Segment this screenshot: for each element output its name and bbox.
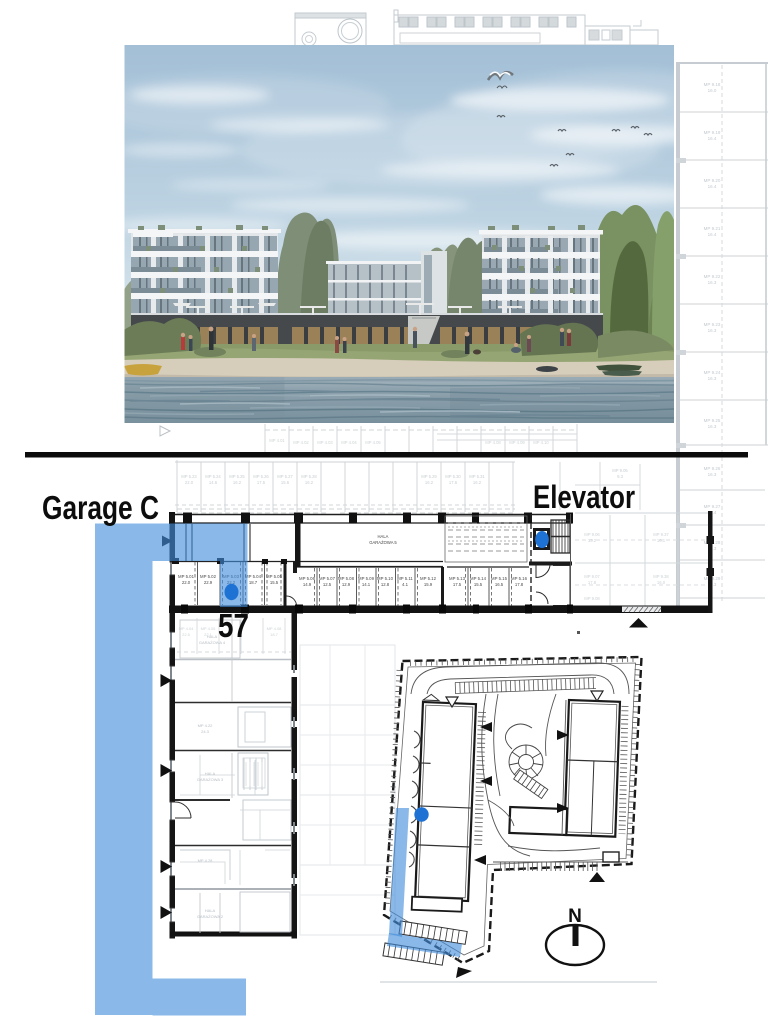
svg-text:12.8: 12.8 bbox=[381, 582, 390, 587]
svg-text:MP 5.04: MP 5.04 bbox=[245, 574, 262, 579]
svg-text:15.5: 15.5 bbox=[474, 582, 483, 587]
svg-text:16.5: 16.5 bbox=[495, 582, 504, 587]
svg-text:14.6: 14.6 bbox=[209, 480, 218, 485]
svg-text:MP 4.05: MP 4.05 bbox=[365, 440, 381, 445]
svg-text:MP 5.23: MP 5.23 bbox=[181, 474, 197, 479]
svg-text:MP 9.06: MP 9.06 bbox=[584, 532, 600, 537]
svg-text:17.5: 17.5 bbox=[257, 480, 266, 485]
svg-text:14.1: 14.1 bbox=[362, 582, 371, 587]
svg-text:17.6: 17.6 bbox=[449, 480, 458, 485]
svg-text:MP 4.10: MP 4.10 bbox=[533, 440, 549, 445]
svg-text:22.0: 22.0 bbox=[182, 580, 191, 585]
svg-text:MP 5.26: MP 5.26 bbox=[253, 474, 269, 479]
svg-text:MP 4.09: MP 4.09 bbox=[509, 440, 525, 445]
svg-text:13.2: 13.2 bbox=[588, 538, 597, 543]
svg-text:MP 4.04: MP 4.04 bbox=[179, 626, 195, 631]
svg-text:22.1: 22.1 bbox=[204, 632, 213, 637]
svg-text:HALA: HALA bbox=[205, 908, 216, 913]
svg-text:16.2: 16.2 bbox=[473, 480, 482, 485]
svg-text:16.3: 16.3 bbox=[708, 424, 717, 429]
svg-text:MP 5.07: MP 5.07 bbox=[319, 576, 336, 581]
svg-text:17.5: 17.5 bbox=[453, 582, 462, 587]
svg-text:MP 4.08: MP 4.08 bbox=[267, 626, 283, 631]
svg-text:MP 9.26: MP 9.26 bbox=[704, 466, 721, 471]
svg-text:16.0: 16.0 bbox=[708, 88, 717, 93]
svg-text:16.4: 16.4 bbox=[708, 184, 717, 189]
svg-text:Garage C: Garage C bbox=[42, 489, 159, 526]
svg-text:4.1: 4.1 bbox=[402, 582, 409, 587]
svg-text:MP 4.08: MP 4.08 bbox=[485, 440, 501, 445]
svg-text:16.3: 16.3 bbox=[708, 376, 717, 381]
svg-text:MP 9.20: MP 9.20 bbox=[704, 178, 721, 183]
svg-text:MP 9.37: MP 9.37 bbox=[653, 532, 669, 537]
svg-text:GARAŻOWA 5: GARAŻOWA 5 bbox=[369, 540, 397, 545]
svg-text:MP 5.05: MP 5.05 bbox=[266, 574, 283, 579]
svg-text:16.3: 16.3 bbox=[708, 472, 717, 477]
svg-text:MP 9.08: MP 9.08 bbox=[584, 596, 600, 601]
svg-text:16.2: 16.2 bbox=[233, 480, 242, 485]
svg-text:16.2: 16.2 bbox=[305, 480, 314, 485]
svg-text:MP 9.25: MP 9.25 bbox=[704, 418, 721, 423]
svg-text:17.8: 17.8 bbox=[515, 582, 524, 587]
svg-text:16.2: 16.2 bbox=[425, 480, 434, 485]
svg-text:16.4: 16.4 bbox=[708, 136, 717, 141]
svg-text:15.9: 15.9 bbox=[424, 582, 433, 587]
svg-text:57: 57 bbox=[218, 607, 249, 644]
svg-text:HALA: HALA bbox=[378, 534, 389, 539]
svg-text:MP 5.06: MP 5.06 bbox=[299, 576, 316, 581]
svg-text:GARAŻOWA 3: GARAŻOWA 3 bbox=[197, 777, 224, 782]
svg-text:N: N bbox=[568, 906, 582, 927]
svg-text:MP 4.04: MP 4.04 bbox=[341, 440, 357, 445]
svg-text:24.3: 24.3 bbox=[201, 729, 210, 734]
svg-text:MP 5.31: MP 5.31 bbox=[469, 474, 485, 479]
svg-text:12.9: 12.9 bbox=[342, 582, 351, 587]
svg-text:MP 5.13: MP 5.13 bbox=[449, 576, 466, 581]
svg-text:22.0: 22.0 bbox=[185, 480, 194, 485]
svg-text:18.7: 18.7 bbox=[270, 632, 279, 637]
svg-text:MP 4.01: MP 4.01 bbox=[269, 438, 285, 443]
svg-text:MP 9.07: MP 9.07 bbox=[584, 574, 600, 579]
svg-text:14.9: 14.9 bbox=[303, 582, 312, 587]
svg-text:MP 5.15: MP 5.15 bbox=[491, 576, 508, 581]
svg-text:GARAŻOWA 2: GARAŻOWA 2 bbox=[197, 914, 224, 919]
svg-text:MP 4.03: MP 4.03 bbox=[317, 440, 333, 445]
svg-text:MP 5.01: MP 5.01 bbox=[178, 574, 195, 579]
svg-text:MP 9.19: MP 9.19 bbox=[704, 130, 721, 135]
svg-text:MP 9.21: MP 9.21 bbox=[704, 226, 721, 231]
svg-text:MP 5.29: MP 5.29 bbox=[421, 474, 437, 479]
svg-text:Elevator: Elevator bbox=[533, 479, 635, 515]
svg-text:MP 5.16: MP 5.16 bbox=[511, 576, 528, 581]
svg-text:MP 5.11: MP 5.11 bbox=[397, 576, 413, 581]
svg-text:MP 9.18: MP 9.18 bbox=[704, 82, 721, 87]
svg-text:MP 5.02: MP 5.02 bbox=[200, 574, 217, 579]
svg-text:MP 5.14: MP 5.14 bbox=[470, 576, 487, 581]
svg-text:12.5: 12.5 bbox=[323, 582, 332, 587]
svg-text:15.6: 15.6 bbox=[281, 480, 290, 485]
svg-text:MP 5.10: MP 5.10 bbox=[377, 576, 394, 581]
svg-text:16.1: 16.1 bbox=[657, 538, 666, 543]
svg-text:16.0: 16.0 bbox=[657, 580, 666, 585]
svg-text:MP 5.12: MP 5.12 bbox=[420, 576, 437, 581]
svg-text:MP 5.08: MP 5.08 bbox=[338, 576, 355, 581]
svg-text:MP 9.23: MP 9.23 bbox=[704, 322, 721, 327]
svg-text:MP 5.24: MP 5.24 bbox=[205, 474, 221, 479]
svg-text:MP 9.27: MP 9.27 bbox=[704, 504, 721, 509]
svg-text:16.3: 16.3 bbox=[708, 328, 717, 333]
svg-text:MP 5.25: MP 5.25 bbox=[229, 474, 245, 479]
svg-text:MP 9.38: MP 9.38 bbox=[653, 574, 669, 579]
svg-text:18.7: 18.7 bbox=[249, 580, 258, 585]
svg-text:MP 5.28: MP 5.28 bbox=[301, 474, 317, 479]
svg-text:15.5: 15.5 bbox=[270, 580, 279, 585]
svg-text:MP 9.22: MP 9.22 bbox=[704, 274, 721, 279]
svg-text:22.9: 22.9 bbox=[204, 580, 213, 585]
svg-text:MP 5.27: MP 5.27 bbox=[277, 474, 293, 479]
svg-text:MP 5.30: MP 5.30 bbox=[445, 474, 461, 479]
svg-text:MP 9.24: MP 9.24 bbox=[704, 370, 721, 375]
svg-text:22.5: 22.5 bbox=[182, 632, 191, 637]
svg-text:MP 5.09: MP 5.09 bbox=[358, 576, 375, 581]
svg-text:MP 4.05: MP 4.05 bbox=[201, 626, 217, 631]
svg-text:16.4: 16.4 bbox=[708, 232, 717, 237]
svg-text:MP 9.05: MP 9.05 bbox=[612, 468, 628, 473]
svg-text:17.8: 17.8 bbox=[588, 580, 597, 585]
svg-text:MP 4.22: MP 4.22 bbox=[198, 723, 214, 728]
svg-text:MP 4.02: MP 4.02 bbox=[293, 440, 309, 445]
svg-text:16.3: 16.3 bbox=[708, 280, 717, 285]
